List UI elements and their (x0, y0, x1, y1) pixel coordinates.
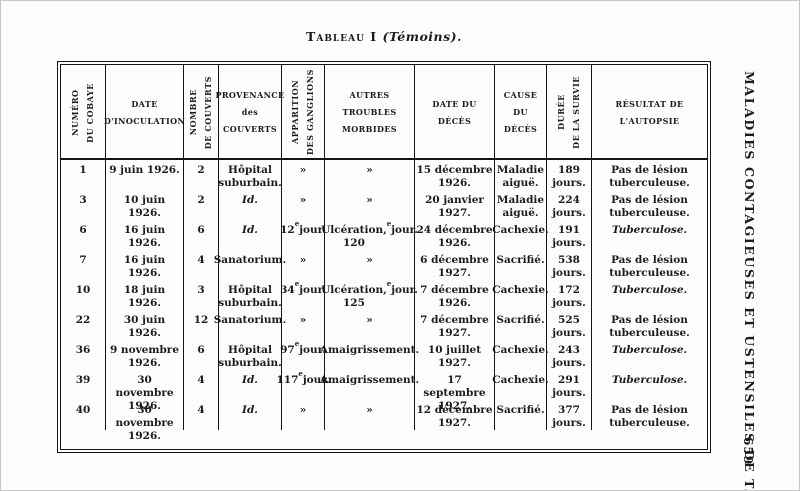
table-cell: 191 jours. (547, 220, 592, 250)
table-cell: 189 jours. (547, 160, 592, 190)
table-cell: Sacrifié. (495, 310, 547, 340)
journal-running-title: MALADIES CONTAGIEUSES ET USTENSILES DE T… (742, 71, 757, 491)
table-cell: 6 (184, 340, 219, 370)
table-cell: 16 juin 1926. (106, 220, 184, 250)
table-cell: 377 jours. (547, 400, 592, 430)
table-cell: 15 décembre 1926. (415, 160, 495, 190)
table-cell: » (325, 400, 415, 430)
column-header: DATE D'INOCULATION (106, 65, 184, 160)
table-cell: 30 novembre 1926. (106, 370, 184, 400)
table-cell: » (282, 190, 325, 220)
table-cell: Sanatorium. (219, 250, 282, 280)
table-cell: Id. (219, 370, 282, 400)
table-cell: Amaigrissement. (325, 370, 415, 400)
table-cell: 117e jour. (282, 370, 325, 400)
table-cell: 10 (61, 280, 106, 310)
table-cell: » (325, 310, 415, 340)
table-cell: 243 jours. (547, 340, 592, 370)
table-cell: » (325, 160, 415, 190)
table-cell: Maladie aiguë. (495, 190, 547, 220)
table-cell: Pas de lésion tuberculeuse. (592, 190, 707, 220)
table-cell: 2 (184, 160, 219, 190)
table-cell: 12e jour. (282, 220, 325, 250)
table-cell: 291 jours. (547, 370, 592, 400)
table-cell: 224 jours. (547, 190, 592, 220)
table-cell: Tuberculose. (592, 340, 707, 370)
table-cell: Pas de lésion tuberculeuse. (592, 250, 707, 280)
table-frame: NUMÉRO DU COBAYEDATE D'INOCULATIONNOMBRE… (57, 61, 711, 453)
table-cell: Cachexie. (495, 340, 547, 370)
table-cell: 17 septembre 1927. (415, 370, 495, 400)
table-cell: » (325, 190, 415, 220)
table-cell: Id. (219, 400, 282, 430)
table-cell: Pas de lésion tuberculeuse. (592, 310, 707, 340)
table-cell: Hôpital suburbain. (219, 340, 282, 370)
table-cell: 7 (61, 250, 106, 280)
table-cell: » (325, 250, 415, 280)
page-number: 659 (741, 437, 755, 465)
table-cell: 36 (61, 340, 106, 370)
table-cell: 6 (184, 220, 219, 250)
column-header: AUTRES TROUBLES MORBIDES (325, 65, 415, 160)
table-cell: Tuberculose. (592, 280, 707, 310)
table-title-main: Tableau I (306, 29, 382, 44)
table-cell: 1 (61, 160, 106, 190)
table-cell: Sacrifié. (495, 400, 547, 430)
table-cell: 34e jour. (282, 280, 325, 310)
table-cell: » (282, 310, 325, 340)
table-cell: Id. (219, 220, 282, 250)
table-cell: Amaigrissement. (325, 340, 415, 370)
table-cell: 40 (61, 400, 106, 430)
column-header: RÉSULTAT DE L'AUTOPSIE (592, 65, 707, 160)
table-cell: 24 décembre 1926. (415, 220, 495, 250)
table-cell: Cachexie. (495, 220, 547, 250)
table-cell: 538 jours. (547, 250, 592, 280)
table-cell: 18 juin 1926. (106, 280, 184, 310)
table-cell: 39 (61, 370, 106, 400)
table-cell: 6 (61, 220, 106, 250)
table-cell: 2 (184, 190, 219, 220)
table-cell: 30 novembre 1926. (106, 400, 184, 430)
table-title-subtitle: (Témoins). (383, 29, 462, 44)
table-cell: 16 juin 1926. (106, 250, 184, 280)
table-title: Tableau I (Témoins). (57, 29, 711, 44)
table-cell: 22 (61, 310, 106, 340)
table-cell: Tuberculose. (592, 370, 707, 400)
table-cell: Pas de lésion tuberculeuse. (592, 160, 707, 190)
table-cell: 97e jour. (282, 340, 325, 370)
column-header: DATE DU DÉCÈS (415, 65, 495, 160)
table-cell: Sacrifié. (495, 250, 547, 280)
table-cell: 4 (184, 370, 219, 400)
table-cell: 4 (184, 400, 219, 430)
table-cell: 7 décembre 1927. (415, 310, 495, 340)
table-cell: Hôpital suburbain. (219, 280, 282, 310)
table-cell: » (282, 160, 325, 190)
table-cell: » (282, 250, 325, 280)
table-cell: Ulcération, 125e jour. (325, 280, 415, 310)
column-header: DURÉE DE LA SURVIE (547, 65, 592, 160)
table-cell: Cachexie. (495, 280, 547, 310)
column-header: CAUSE DU DÉCÈS (495, 65, 547, 160)
table-cell: 6 décembre 1927. (415, 250, 495, 280)
table-cell: Ulcération, 120e jour. (325, 220, 415, 250)
table-cell: » (282, 400, 325, 430)
scanned-paper-page: Tableau I (Témoins). NUMÉRO DU COBAYEDAT… (0, 0, 800, 491)
column-header: NOMBRE DE COUVERTS (184, 65, 219, 160)
table-cell: Cachexie. (495, 370, 547, 400)
table-cell: 10 juillet 1927. (415, 340, 495, 370)
column-header: NUMÉRO DU COBAYE (61, 65, 106, 160)
table-cell: 3 (184, 280, 219, 310)
table-cell: Tuberculose. (592, 220, 707, 250)
table-cell: 3 (61, 190, 106, 220)
table-cell: Hôpital suburbain. (219, 160, 282, 190)
table-cell: 172 jours. (547, 280, 592, 310)
table-cell: 9 novembre 1926. (106, 340, 184, 370)
table-cell: Pas de lésion tuberculeuse. (592, 400, 707, 430)
table-cell: 525 jours. (547, 310, 592, 340)
table-cell: 9 juin 1926. (106, 160, 184, 190)
table-cell: 10 juin 1926. (106, 190, 184, 220)
column-header: PROVENANCE des COUVERTS (219, 65, 282, 160)
table-cell: Sanatorium. (219, 310, 282, 340)
data-table: NUMÉRO DU COBAYEDATE D'INOCULATIONNOMBRE… (60, 64, 708, 450)
table-cell: 30 juin 1926. (106, 310, 184, 340)
table-cell: Id. (219, 190, 282, 220)
table-cell: 12 décembre 1927. (415, 400, 495, 430)
column-header: APPARITION DES GANGLIONS (282, 65, 325, 160)
table-cell: 20 janvier 1927. (415, 190, 495, 220)
table-cell: 7 décembre 1926. (415, 280, 495, 310)
table-cell: Maladie aiguë. (495, 160, 547, 190)
